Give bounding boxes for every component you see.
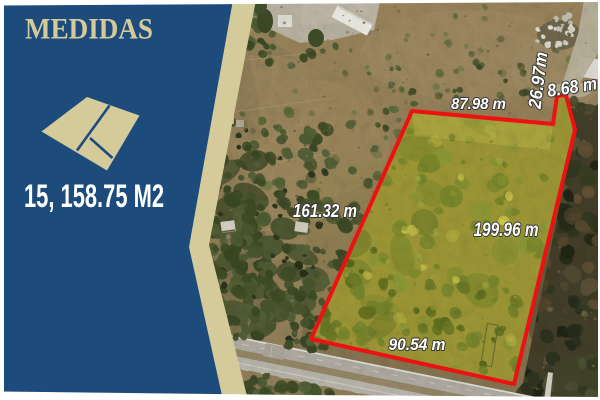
svg-text:90.54 m: 90.54 m bbox=[389, 335, 446, 354]
svg-text:MEDIDAS: MEDIDAS bbox=[25, 13, 153, 46]
svg-text:161.32 m: 161.32 m bbox=[293, 201, 357, 221]
svg-text:87.98 m: 87.98 m bbox=[451, 96, 506, 113]
svg-text:199.96 m: 199.96 m bbox=[474, 220, 539, 241]
svg-text:15, 158.75 M2: 15, 158.75 M2 bbox=[24, 178, 164, 214]
